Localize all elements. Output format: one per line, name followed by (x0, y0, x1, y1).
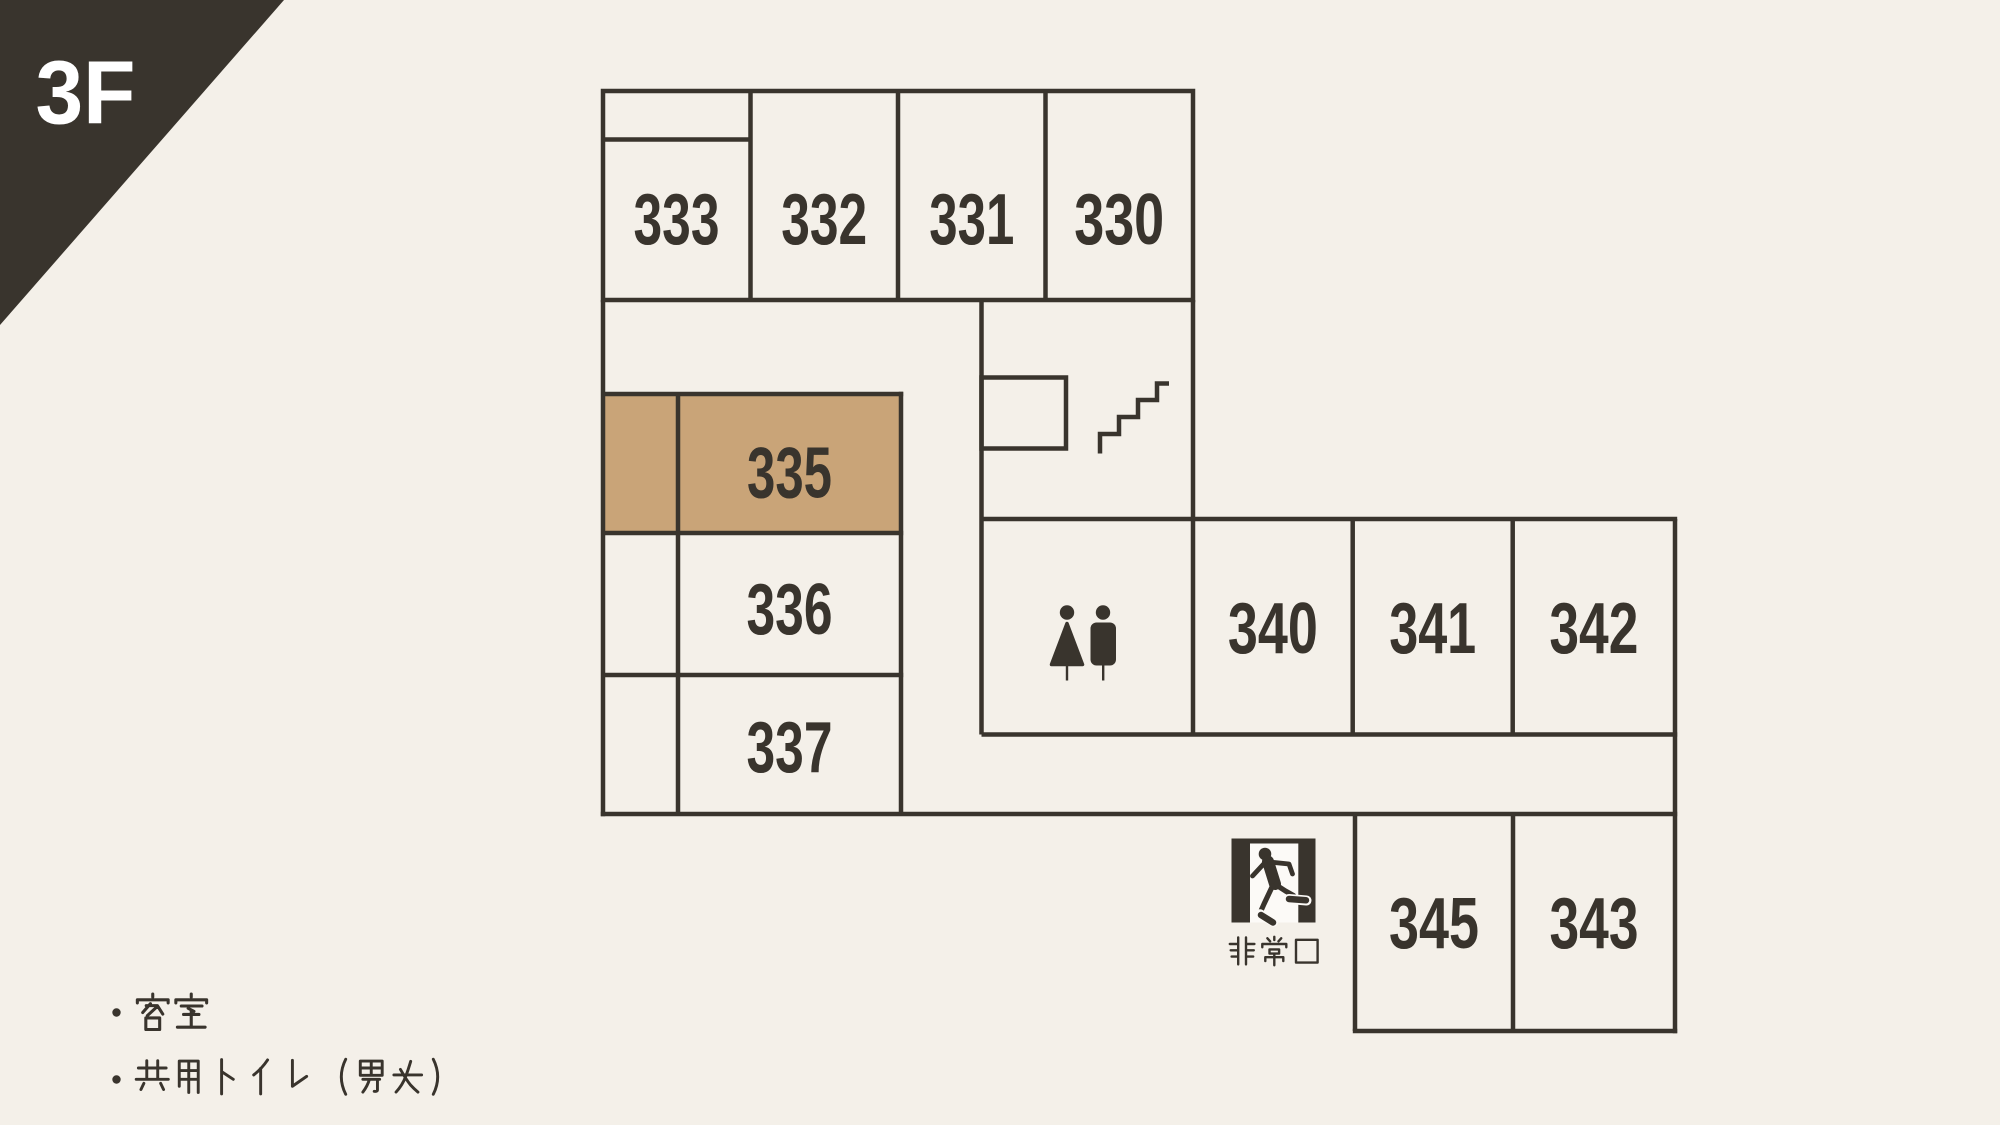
svg-text:330: 330 (1074, 180, 1164, 260)
svg-text:337: 337 (747, 708, 833, 788)
svg-text:3F: 3F (36, 44, 136, 144)
svg-text:343: 343 (1550, 884, 1639, 964)
svg-text:345: 345 (1389, 884, 1479, 964)
svg-text:331: 331 (929, 180, 1014, 260)
svg-text:341: 341 (1389, 589, 1476, 669)
svg-text:332: 332 (781, 180, 867, 260)
svg-text:335: 335 (747, 434, 832, 514)
svg-text:342: 342 (1549, 589, 1638, 669)
svg-text:333: 333 (634, 180, 720, 260)
svg-text:340: 340 (1228, 589, 1318, 669)
svg-text:336: 336 (747, 570, 833, 650)
